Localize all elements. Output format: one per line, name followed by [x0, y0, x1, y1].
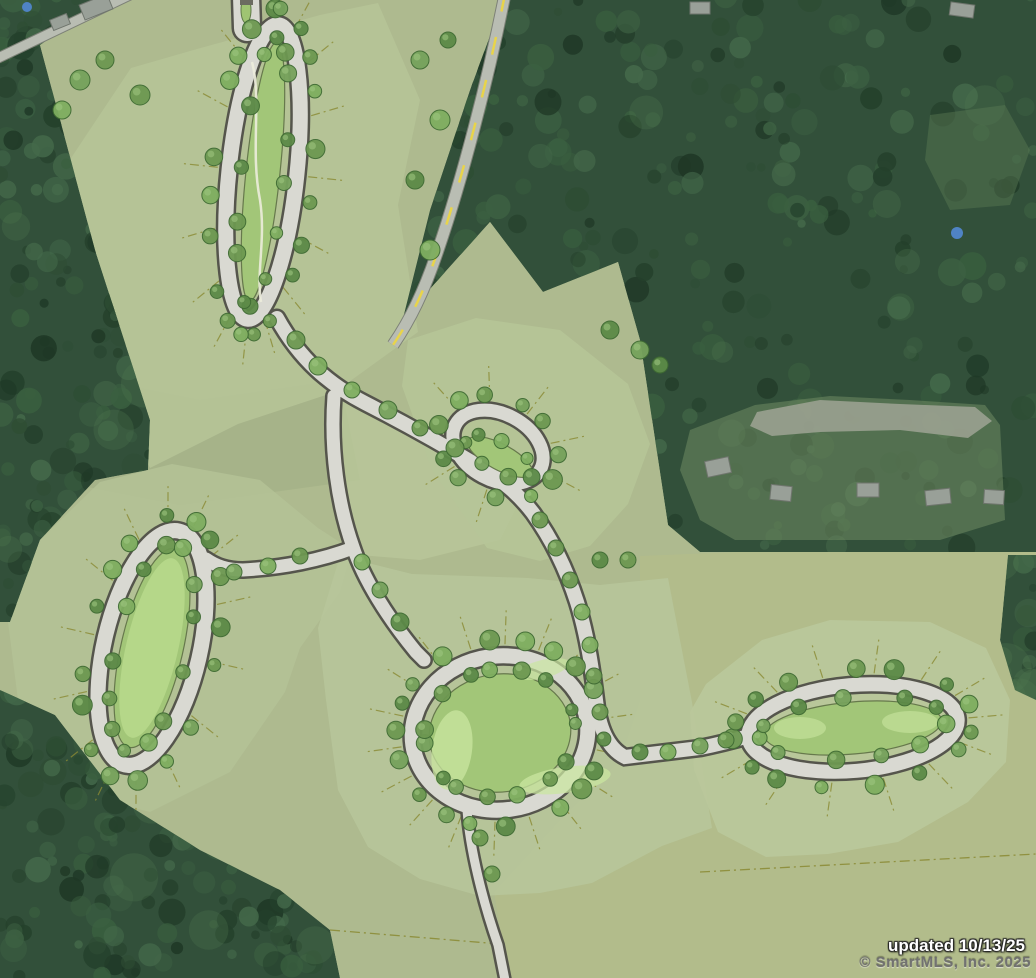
tree — [160, 755, 173, 768]
tree — [158, 536, 175, 553]
tree — [771, 745, 785, 759]
tree — [72, 695, 92, 715]
tree — [270, 31, 284, 45]
tree — [187, 512, 206, 531]
tree — [585, 762, 603, 780]
tree — [660, 744, 676, 760]
tree — [303, 196, 317, 210]
tree — [768, 770, 786, 788]
tree — [586, 668, 602, 684]
tree — [202, 228, 218, 244]
tree — [260, 558, 276, 574]
tree — [449, 780, 464, 795]
tree — [463, 817, 477, 831]
tree — [480, 789, 496, 805]
tree — [582, 637, 598, 653]
tree — [70, 70, 90, 90]
tree — [601, 321, 619, 339]
tree — [780, 673, 798, 691]
tree — [572, 779, 592, 799]
tree — [728, 714, 744, 730]
tree — [118, 744, 131, 757]
tree — [472, 830, 488, 846]
tree — [597, 732, 611, 746]
tree — [105, 721, 120, 736]
tree — [118, 598, 134, 614]
tree — [592, 552, 608, 568]
tree — [525, 489, 538, 502]
tree — [631, 341, 649, 359]
tree — [791, 699, 807, 715]
tree — [308, 84, 322, 98]
tree — [897, 690, 913, 706]
tree — [234, 160, 248, 174]
tree — [562, 572, 578, 588]
tree — [287, 331, 305, 349]
tree — [566, 657, 585, 676]
tree — [748, 692, 763, 707]
tree — [160, 508, 174, 522]
tree — [475, 456, 489, 470]
tree — [620, 552, 636, 568]
smartmls-watermark: © SmartMLS, Inc. 2025 — [859, 954, 1031, 971]
tree — [815, 781, 828, 794]
tree — [482, 662, 498, 678]
tree — [102, 691, 117, 706]
tree — [550, 447, 566, 463]
tree — [75, 666, 90, 681]
tree — [121, 535, 138, 552]
tree — [228, 244, 245, 261]
tree — [183, 720, 198, 735]
tree — [309, 357, 327, 375]
tree — [140, 734, 157, 751]
tree — [532, 512, 548, 528]
tree — [523, 469, 540, 486]
tree — [440, 32, 456, 48]
tree — [500, 468, 517, 485]
tree — [416, 721, 434, 739]
site-plan-map: updated 10/13/25 © SmartMLS, Inc. 2025 — [0, 0, 1036, 978]
tree — [509, 787, 525, 803]
tree — [101, 767, 119, 785]
tree — [186, 577, 202, 593]
tree — [513, 662, 530, 679]
tree — [757, 719, 770, 732]
tree — [652, 357, 668, 373]
tree — [430, 416, 449, 435]
tree — [450, 470, 466, 486]
tree — [538, 673, 553, 688]
tree — [960, 695, 978, 713]
tree — [174, 539, 191, 556]
tree — [53, 101, 71, 119]
tree — [242, 97, 260, 115]
tree — [574, 604, 590, 620]
tree — [293, 237, 309, 253]
tree — [472, 428, 485, 441]
tree — [569, 717, 581, 729]
tree — [406, 171, 424, 189]
tree — [270, 227, 282, 239]
aerial-building — [770, 484, 792, 501]
tree — [439, 807, 455, 823]
tree — [130, 85, 150, 105]
tree — [103, 560, 121, 578]
tree — [273, 1, 287, 15]
tree — [387, 721, 405, 739]
tree — [286, 268, 300, 282]
tree — [420, 240, 440, 260]
tree — [566, 704, 578, 716]
tree — [205, 148, 223, 166]
tree — [281, 133, 295, 147]
tree — [247, 328, 260, 341]
tree — [226, 564, 242, 580]
tree — [874, 748, 889, 763]
tree — [494, 433, 509, 448]
aerial-building — [925, 488, 951, 506]
tree — [395, 696, 409, 710]
tree — [276, 175, 291, 190]
tree — [516, 632, 535, 651]
tree — [865, 775, 884, 794]
tree — [446, 439, 464, 457]
tree — [201, 531, 219, 549]
tree — [238, 295, 251, 308]
aerial-building — [984, 489, 1005, 504]
tree — [294, 21, 308, 35]
tree — [229, 213, 246, 230]
tree — [412, 420, 428, 436]
tree — [306, 139, 325, 158]
tree — [516, 399, 529, 412]
tree — [543, 470, 563, 490]
tree — [259, 273, 272, 286]
aerial-building — [690, 2, 710, 14]
tree — [496, 817, 515, 836]
tree — [354, 554, 370, 570]
tree — [176, 665, 190, 679]
tree — [372, 582, 388, 598]
tree — [90, 599, 104, 613]
tree — [544, 642, 562, 660]
tree — [692, 738, 708, 754]
tree — [847, 660, 865, 678]
tree — [202, 186, 219, 203]
aerial-pool — [22, 2, 32, 12]
aerial-building — [949, 2, 975, 18]
tree — [487, 489, 504, 506]
tree — [745, 760, 759, 774]
tree — [929, 700, 943, 714]
tree — [242, 20, 261, 39]
tree — [451, 392, 469, 410]
tree — [548, 540, 564, 556]
tree — [280, 65, 297, 82]
tree — [413, 788, 427, 802]
tree — [464, 667, 479, 682]
tree — [937, 715, 955, 733]
tree — [433, 647, 452, 666]
tree — [434, 685, 451, 702]
tree — [208, 658, 221, 671]
tree — [292, 548, 308, 564]
tree — [210, 285, 224, 299]
tree — [940, 678, 953, 691]
tree — [521, 452, 533, 464]
tree — [84, 743, 98, 757]
tree — [535, 413, 550, 428]
tree — [155, 713, 172, 730]
tree — [477, 387, 493, 403]
aerial-pool — [951, 227, 963, 239]
tree — [552, 799, 569, 816]
tree — [391, 613, 409, 631]
tree — [128, 771, 148, 791]
tree — [827, 751, 844, 768]
tree — [406, 678, 419, 691]
tree — [234, 327, 248, 341]
tree — [263, 314, 276, 327]
tree — [718, 732, 734, 748]
tree — [480, 630, 500, 650]
tree — [437, 771, 451, 785]
tree — [344, 382, 360, 398]
tree — [884, 660, 904, 680]
tree — [230, 47, 247, 64]
tree — [303, 50, 318, 65]
tree — [96, 51, 114, 69]
aerial-building — [857, 483, 879, 497]
tree — [276, 43, 294, 61]
tree — [379, 401, 397, 419]
tree — [187, 610, 201, 624]
site-map-svg — [0, 0, 1036, 978]
tree — [220, 313, 235, 328]
tree — [430, 110, 450, 130]
tree — [592, 704, 608, 720]
tree — [912, 736, 929, 753]
tree — [136, 562, 151, 577]
tree — [632, 744, 648, 760]
updated-date-label: updated 10/13/25 — [888, 936, 1025, 956]
tree — [964, 725, 978, 739]
tree — [411, 51, 429, 69]
tree — [105, 653, 121, 669]
tree — [220, 71, 238, 89]
tree — [484, 866, 500, 882]
tree — [951, 742, 966, 757]
tree — [211, 618, 230, 637]
tree — [912, 766, 927, 781]
tree — [543, 772, 558, 787]
tree — [257, 47, 271, 61]
tree — [835, 690, 851, 706]
tree — [558, 754, 574, 770]
tree — [390, 751, 408, 769]
